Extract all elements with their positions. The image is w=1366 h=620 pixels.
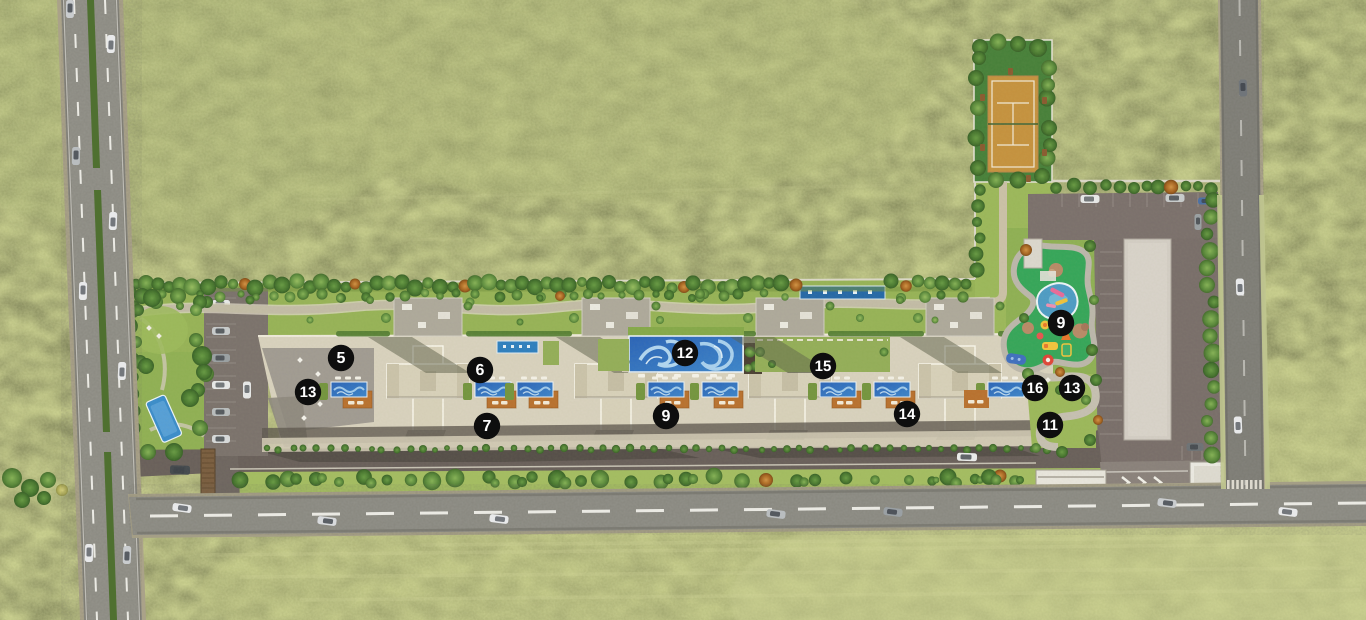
svg-text:13: 13 <box>1064 380 1081 397</box>
svg-text:9: 9 <box>662 408 671 425</box>
svg-text:9: 9 <box>1057 315 1066 332</box>
svg-text:16: 16 <box>1027 380 1044 397</box>
svg-text:5: 5 <box>337 350 346 367</box>
svg-text:7: 7 <box>483 418 492 435</box>
svg-text:11: 11 <box>1042 417 1058 434</box>
svg-text:12: 12 <box>677 345 694 362</box>
svg-text:13: 13 <box>300 384 317 401</box>
svg-text:14: 14 <box>899 406 916 423</box>
svg-text:15: 15 <box>815 358 832 375</box>
svg-text:6: 6 <box>476 362 485 379</box>
